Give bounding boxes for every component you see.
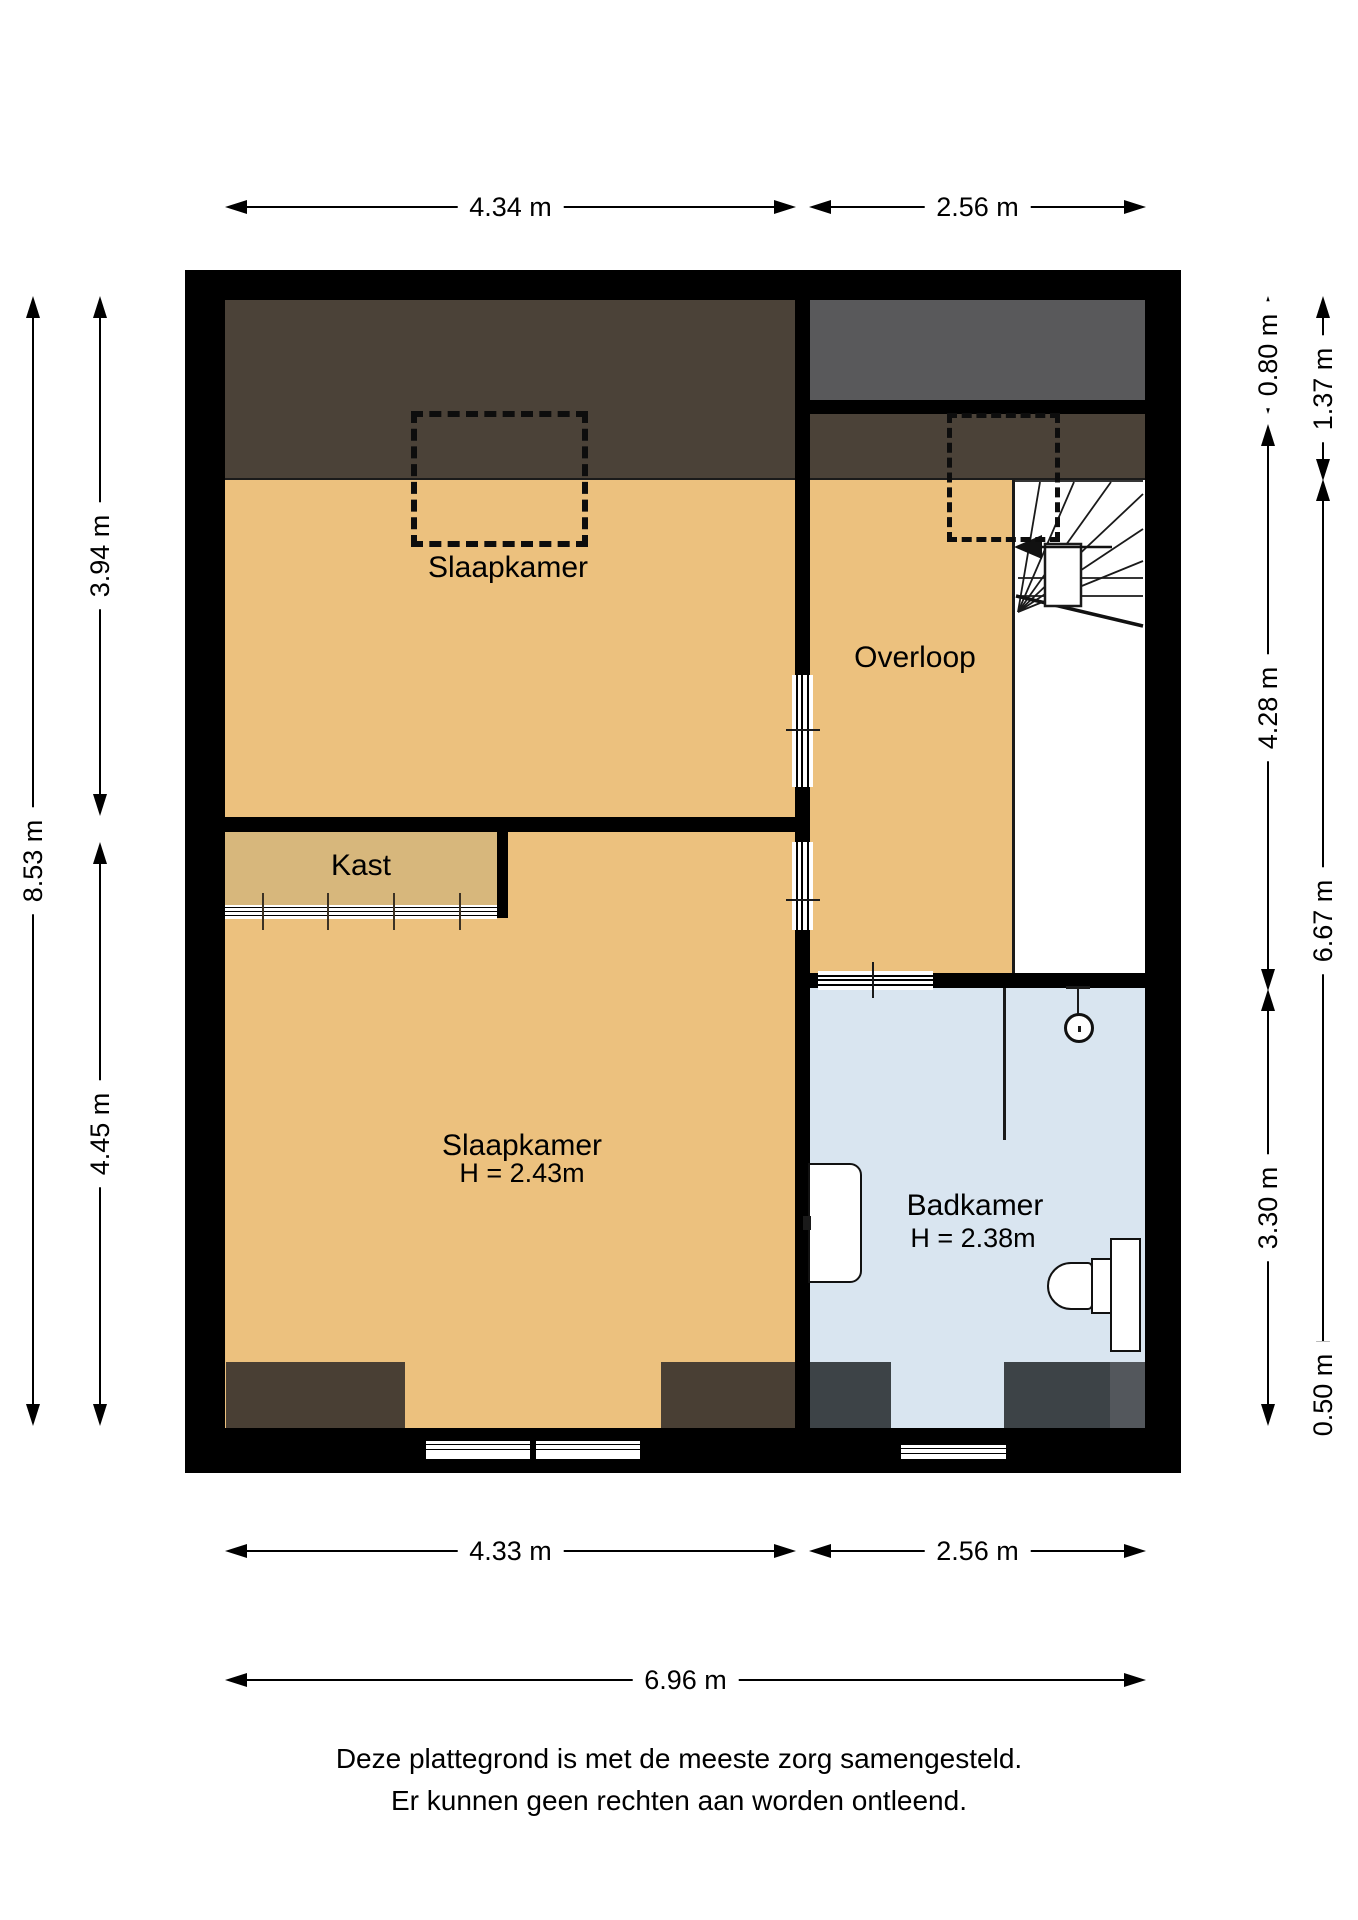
- wall-exterior-right: [1145, 270, 1181, 1473]
- dimension-right-top-combined: 1.37 m: [1316, 297, 1330, 480]
- dimension-bottom-left: 4.33 m: [226, 1544, 795, 1558]
- dimension-left-bottom-room: 4.45 m: [93, 843, 107, 1425]
- dimension-left-total: 8.53 m: [26, 297, 40, 1425]
- dimension-top-left: 4.34 m: [226, 200, 795, 214]
- wall-exterior-bottom: [185, 1428, 1181, 1473]
- dormer-outline-slaapkamer-top: [411, 411, 588, 547]
- window-badkamer: [899, 1443, 1008, 1461]
- wall-divider-left-section: [225, 817, 795, 832]
- wardrobe-rail-tick: [459, 893, 461, 930]
- sink-faucet: [803, 1216, 811, 1230]
- wall-exterior-left: [185, 270, 225, 1473]
- room-label-slaapkamer-top: Slaapkamer: [258, 551, 758, 585]
- room-label-kast: Kast: [261, 849, 461, 883]
- facade-block-left-2: [661, 1362, 795, 1428]
- window-slaapkamer-bottom: [424, 1439, 642, 1461]
- facade-block-badkamer-1: [810, 1362, 891, 1428]
- shower-bar: [1066, 986, 1090, 989]
- door-opening-tick-2: [786, 899, 820, 901]
- dimension-right-middle-combined: 6.67 m: [1316, 480, 1330, 1362]
- shower-head-dot: [1078, 1026, 1081, 1032]
- dimension-right-facade-strip: 0.50 m: [1316, 1362, 1330, 1428]
- toilet-bowl: [1047, 1262, 1093, 1310]
- dimension-bottom-right: 2.56 m: [810, 1544, 1145, 1558]
- wall-kast-right: [497, 817, 508, 918]
- door-opening-tick-3: [872, 962, 874, 998]
- wall-under-roof-void: [810, 400, 1145, 414]
- dimension-top-right: 2.56 m: [810, 200, 1145, 214]
- dimension-bottom-total: 6.96 m: [226, 1673, 1145, 1687]
- wall-exterior-top: [185, 270, 1181, 300]
- facade-block-badkamer-3: [1110, 1362, 1145, 1428]
- duct-column: [1110, 1238, 1141, 1352]
- shower-screen: [1003, 988, 1006, 1140]
- window-mullion: [530, 1439, 536, 1461]
- shower-stem: [1077, 988, 1079, 1016]
- door-opening-badkamer: [818, 971, 933, 990]
- door-opening-slaapkamer-top: [792, 675, 813, 787]
- disclaimer-line-2: Er kunnen geen rechten aan worden ontlee…: [0, 1780, 1358, 1822]
- facade-block-left-1: [226, 1362, 405, 1428]
- room-label-overloop: Overloop: [765, 641, 1065, 675]
- roof-void-zone-top-right: [810, 300, 1145, 400]
- room-label-badkamer: Badkamer: [825, 1189, 1125, 1223]
- dimension-right-badkamer: 3.30 m: [1261, 990, 1275, 1425]
- dimension-right-overloop: 4.28 m: [1261, 425, 1275, 990]
- room-height-badkamer: H = 2.38m: [823, 1223, 1123, 1253]
- door-opening-slaapkamer-bottom: [792, 842, 813, 930]
- wardrobe-rail-tick: [262, 893, 264, 930]
- toilet-cistern: [1091, 1258, 1112, 1314]
- wardrobe-rail: [225, 905, 497, 919]
- facade-block-badkamer-2: [1004, 1362, 1110, 1428]
- floorplan-page: Slaapkamer Overloop Kast Slaapkamer H = …: [0, 0, 1358, 1920]
- room-height-slaapkamer-bottom: H = 2.43m: [272, 1158, 772, 1188]
- door-opening-tick-1: [786, 729, 820, 731]
- disclaimer-line-1: Deze plattegrond is met de meeste zorg s…: [0, 1738, 1358, 1780]
- wardrobe-rail-tick: [327, 893, 329, 930]
- wardrobe-rail-tick: [393, 893, 395, 930]
- dimension-left-top-room: 3.94 m: [93, 297, 107, 815]
- staircase-down-icon: [1012, 480, 1145, 973]
- dimension-right-roof-void: 0.80 m: [1261, 297, 1275, 413]
- dormer-outline-overloop: [947, 413, 1060, 542]
